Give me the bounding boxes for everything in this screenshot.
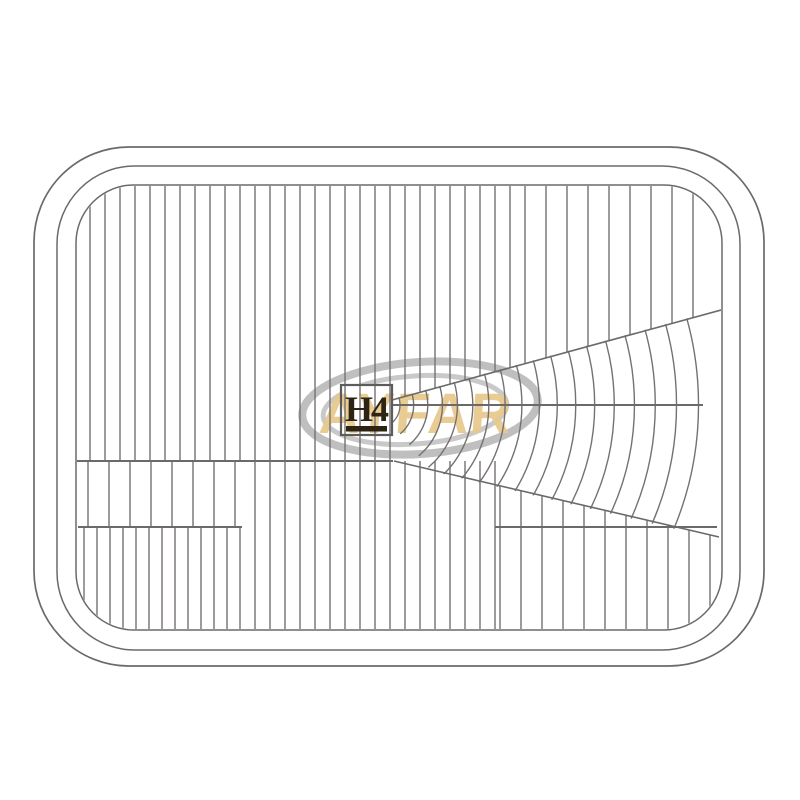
flutes-mid-bottom	[255, 461, 495, 630]
h4-marking-text: H4	[345, 389, 389, 429]
flutes-left-band-sparse	[88, 462, 235, 527]
lens-fluting	[76, 158, 721, 652]
flutes-left-bottom-dense	[84, 527, 240, 630]
flutes-right-bottom-sparse	[500, 486, 710, 630]
headlight-lens-drawing: AYFARH4	[0, 0, 800, 800]
h4-marking-underline	[346, 426, 387, 432]
flutes-main-sparse-right	[546, 186, 693, 358]
product-image: AYFARH4	[0, 0, 800, 800]
